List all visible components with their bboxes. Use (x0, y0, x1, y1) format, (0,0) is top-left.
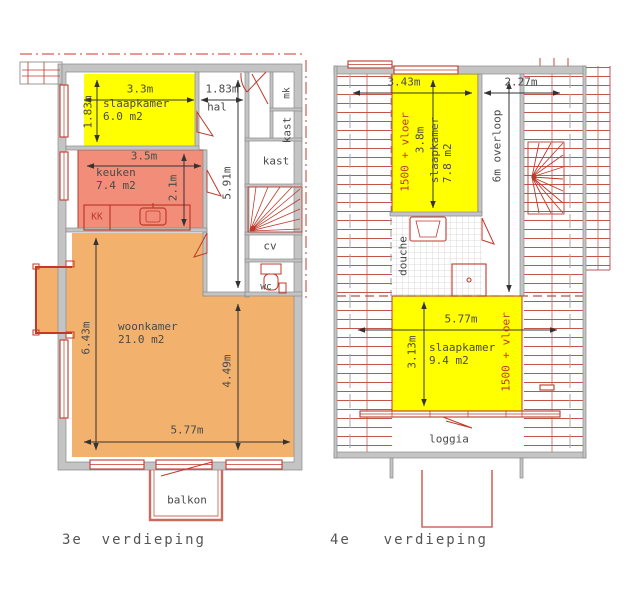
room-area: 21.0 m2 (118, 333, 178, 346)
dim-slaapkamer-depth: 1.83m (82, 95, 95, 128)
room-name: woonkamer (118, 320, 178, 333)
dim-right-width: 2.27m (504, 76, 537, 89)
dim-slaapkamer-width: 3.3m (127, 83, 154, 96)
room-area: 7.8 m2 (441, 117, 454, 183)
caption-4e-verdieping: 4e verdieping (330, 534, 488, 547)
room-area: 9.4 m2 (429, 354, 495, 367)
room-label-mk: mk (281, 87, 294, 98)
dim-left-width: 3.43m (387, 76, 420, 89)
washbasin-icon (410, 217, 446, 241)
room-label-slaapkamer1: slaapkamer7.8 m2 (428, 117, 454, 183)
dim-keuken-depth: 2.1m (167, 175, 180, 202)
room-name: keuken (96, 166, 136, 179)
room-label-balkon: balkon (167, 494, 207, 507)
floorplan-linework (0, 0, 640, 600)
floorplan-drawing: slaapkamer6.0 m2 hal mk kast kast keuken… (0, 0, 640, 600)
dim-woonkamer-depth-right: 4.49m (221, 354, 234, 387)
dim-slaapkamer2-width: 5.77m (444, 313, 477, 326)
dim-woonkamer-depth-left: 6.43m (80, 321, 93, 354)
room-name: slaapkamer (428, 117, 441, 183)
dim-hal-depth: 5.91m (221, 166, 234, 199)
room-label-hal: hal (207, 101, 227, 114)
lower-balcony-outline (422, 470, 492, 527)
room-label-woonkamer: woonkamer21.0 m2 (118, 320, 178, 346)
dim-slaapkamer1-depth: 3.8m (414, 127, 427, 154)
room-name: slaapkamer (103, 97, 169, 110)
room-label-slaapkamer2: slaapkamer9.4 m2 (429, 341, 495, 367)
room-label-slaapkamer: slaapkamer6.0 m2 (103, 97, 169, 123)
room-label-kk: KK (91, 211, 102, 224)
dim-slaapkamer2-depth: 3.13m (406, 335, 419, 368)
room-label-douche: douche (397, 236, 410, 276)
right-plan (334, 58, 610, 527)
left-room-fills (36, 74, 294, 457)
room-name: slaapkamer (429, 341, 495, 354)
headroom-note-1: 1500 + vloer (399, 112, 412, 191)
room-label-kast-vertical: kast (281, 117, 294, 144)
room-label-overloop: 6m overloop (491, 110, 504, 183)
room-label-keuken: keuken7.4 m2 (96, 166, 136, 192)
room-label-kast: kast (263, 155, 290, 168)
dim-keuken-width: 3.5m (131, 150, 158, 163)
room-label-wc: wc (260, 281, 271, 294)
room-area: 6.0 m2 (103, 110, 169, 123)
room-area: 7.4 m2 (96, 179, 136, 192)
headroom-note-2: 1500 + vloer (500, 312, 513, 391)
dim-woonkamer-width: 5.77m (170, 424, 203, 437)
room-label-loggia: loggia (429, 433, 469, 446)
dim-hal-width: 1.83m (205, 83, 238, 96)
room-label-cv: cv (263, 240, 276, 253)
caption-3e-verdieping: 3e verdieping (62, 534, 206, 547)
